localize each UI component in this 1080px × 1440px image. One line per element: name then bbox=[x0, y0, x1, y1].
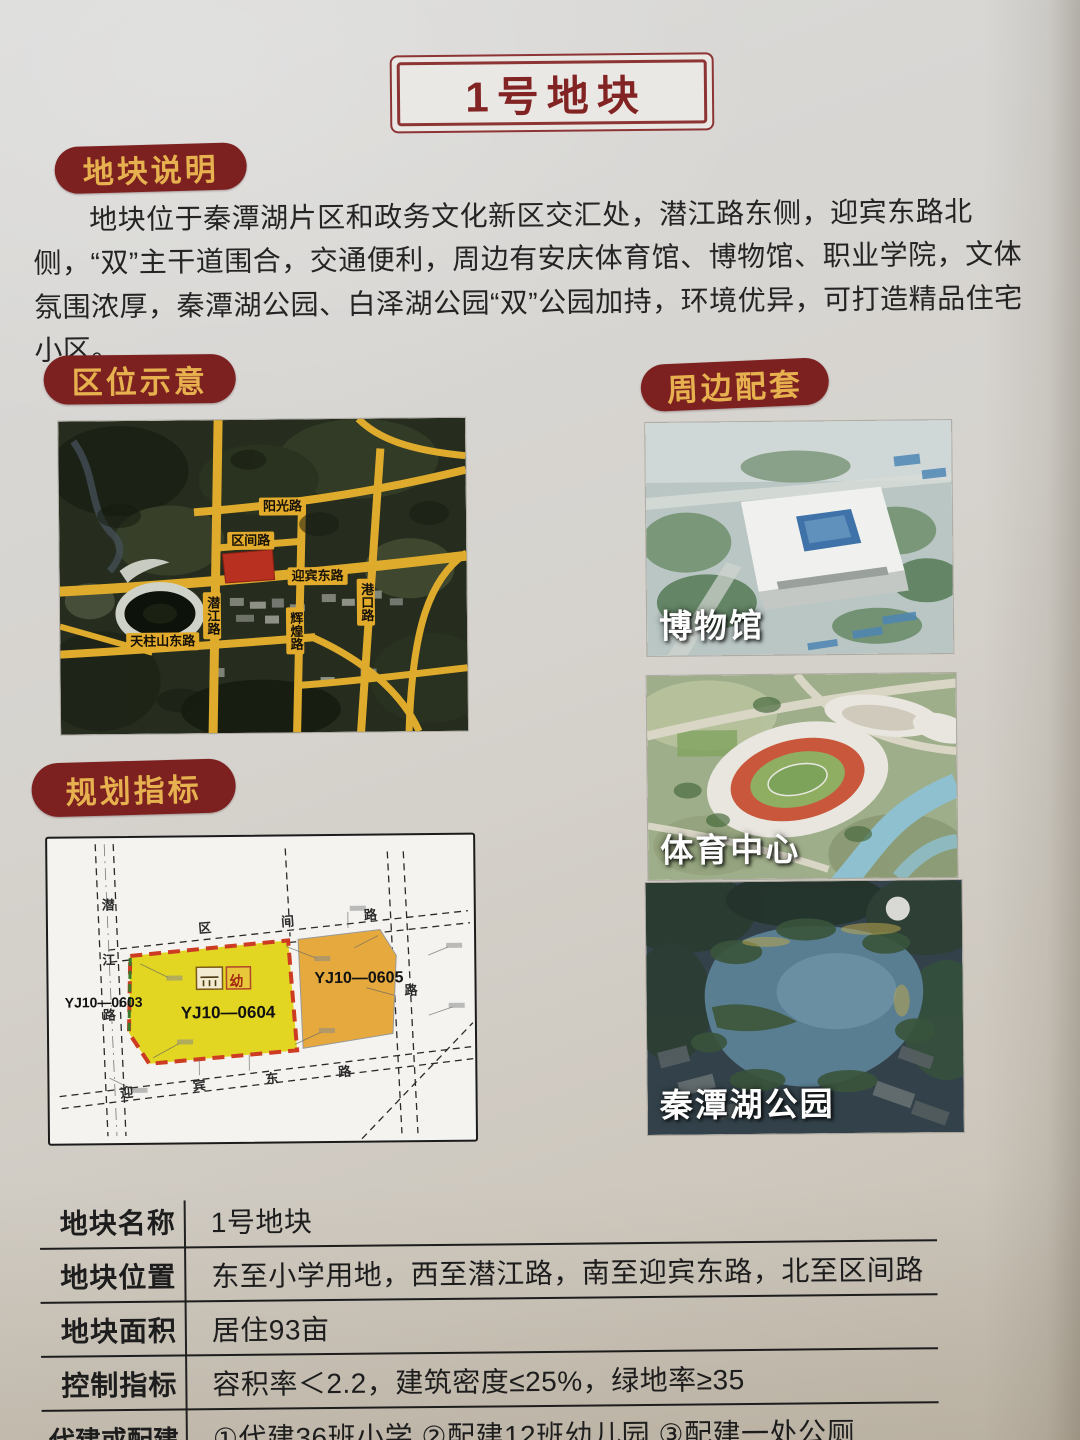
target-parcel-highlight bbox=[222, 550, 274, 583]
row-value: ①代建36班小学 ②配建12班幼儿园 ③配建一处公厕 bbox=[189, 1411, 856, 1440]
table-row: 地块面积 居住93亩 bbox=[41, 1294, 1053, 1358]
school-icon bbox=[196, 967, 222, 989]
planning-parcel-map: 幼 YJ10—0603 YJ10—0604 YJ10—0605 区间路 迎宾东路… bbox=[45, 833, 478, 1146]
sports-center-photo-label: 体育中心 bbox=[660, 823, 800, 872]
satellite-location-map: 阳光路 区间路 迎宾东路 潜江路 辉煌路 港口路 天柱山东路 bbox=[58, 418, 468, 735]
section-header-surrounding-facilities: 周边配套 bbox=[640, 357, 830, 412]
table-row: 地块名称 1号地块 bbox=[40, 1186, 1052, 1250]
row-label: 地块位置 bbox=[40, 1255, 187, 1296]
road-label-tianzhushan: 天柱山东路 bbox=[126, 632, 199, 651]
row-value: 居住93亩 bbox=[188, 1308, 330, 1349]
road-label-yangguang: 阳光路 bbox=[259, 497, 306, 516]
section-header-label: 区位示意 bbox=[71, 356, 207, 402]
sports-center-aerial-photo: 体育中心 bbox=[647, 673, 958, 880]
section-header-planning-indicators: 规划指标 bbox=[31, 758, 236, 817]
museum-aerial-photo: 博物馆 bbox=[645, 420, 953, 656]
section-header-parcel-description: 地块说明 bbox=[54, 142, 247, 194]
museum-building bbox=[741, 486, 909, 610]
parcel-title-box: 1号地块 bbox=[390, 52, 715, 133]
road-label-huihuang: 辉煌路 bbox=[286, 607, 305, 654]
row-label: 地块名称 bbox=[40, 1201, 187, 1242]
parcel-spec-table: 地块名称 1号地块 地块位置 东至小学用地，西至潜江路，南至迎宾东路，北至区间路… bbox=[40, 1186, 1054, 1440]
section-header-label: 规划指标 bbox=[65, 764, 202, 813]
museum-photo-label: 博物馆 bbox=[659, 599, 764, 648]
parcel-0605-shape bbox=[298, 929, 397, 1048]
table-row: 控制指标 容积率＜2.2，建筑密度≤25%，绿地率≥35 bbox=[41, 1348, 1053, 1412]
row-label: 代建或配建 bbox=[42, 1419, 189, 1440]
row-label: 地块面积 bbox=[41, 1309, 188, 1350]
paper-sheet: 1号地块 地块说明 地块位于秦潭湖片区和政务文化新区交汇处，潜江路东侧，迎宾东路… bbox=[0, 0, 1080, 1440]
satellite-map-graphic bbox=[58, 418, 468, 735]
qintan-lake-park-aerial-photo: 秦潭湖公园 bbox=[646, 880, 964, 1135]
road-label-qianjiang: 潜江路 bbox=[203, 592, 222, 639]
section-header-label: 周边配套 bbox=[666, 359, 804, 410]
section-header-label: 地块说明 bbox=[82, 144, 219, 193]
parcel-code-0605: YJ10—0605 bbox=[314, 969, 403, 988]
row-value: 1号地块 bbox=[187, 1200, 313, 1241]
park-photo-label: 秦潭湖公园 bbox=[659, 1077, 834, 1127]
parcel-description-paragraph: 地块位于秦潭湖片区和政务文化新区交汇处，潜江路东侧，迎宾东路北侧，“双”主干道围… bbox=[33, 189, 1040, 372]
planning-road-east-label: 路 bbox=[401, 983, 420, 996]
kindergarten-icon-char: 幼 bbox=[229, 971, 243, 991]
planning-road-west-label: 潜江路 bbox=[98, 898, 119, 1063]
row-label: 控制指标 bbox=[41, 1363, 188, 1404]
dome-building bbox=[886, 896, 910, 920]
brochure-page-photo: 1号地块 地块说明 地块位于秦潭湖片区和政务文化新区交汇处，潜江路东侧，迎宾东路… bbox=[0, 0, 1080, 1440]
table-row: 地块位置 东至小学用地，西至潜江路，南至迎宾东路，北至区间路 bbox=[40, 1240, 1052, 1304]
row-value: 容积率＜2.2，建筑密度≤25%，绿地率≥35 bbox=[188, 1358, 745, 1403]
road-label-qujian: 区间路 bbox=[227, 532, 274, 551]
parcel-code-0604: YJ10—0604 bbox=[181, 1003, 276, 1024]
page-title: 1号地块 bbox=[457, 61, 647, 124]
section-header-location-sketch: 区位示意 bbox=[43, 354, 235, 405]
row-value: 东至小学用地，西至潜江路，南至迎宾东路，北至区间路 bbox=[187, 1248, 924, 1295]
road-label-gangkou: 港口路 bbox=[357, 579, 376, 626]
road-label-yingbin: 迎宾东路 bbox=[288, 567, 348, 586]
